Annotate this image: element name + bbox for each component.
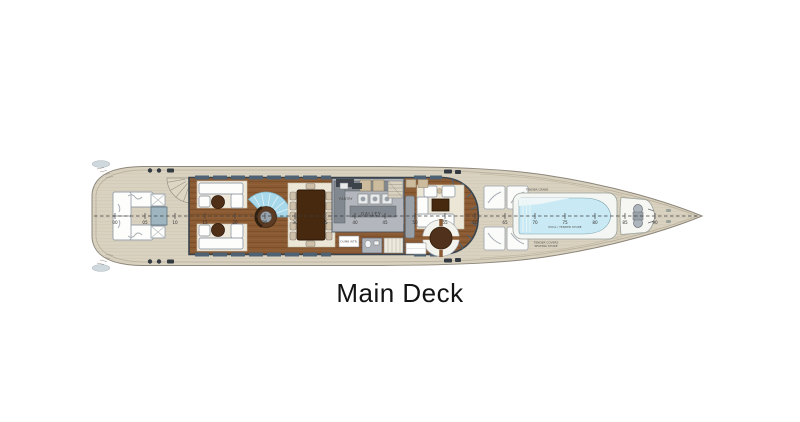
ruler-tick-label: 60 (472, 220, 478, 225)
ruler-tick-label: 35 (322, 220, 328, 225)
ruler-tick-label: 15 (202, 220, 208, 225)
ruler-tick-label: 20 (232, 220, 238, 225)
lounge-cabinet (406, 243, 426, 254)
ruler-tick-label: 25 (262, 220, 268, 225)
aft-side-table-bottom (151, 226, 165, 238)
salon-coffee-table-top (212, 196, 225, 209)
seating-store-label: SEATING STORE (534, 244, 557, 248)
ruler-tick-label: 80 (592, 220, 598, 225)
deck-plan-drawing: GALLEY PANTRY DUMB WTR. (0, 0, 800, 422)
dining-table (297, 190, 325, 240)
pool-store-label: POOL / TENDER STORE (548, 225, 581, 229)
ruler-tick-label: 10 (172, 220, 178, 225)
yacht-deck-plan-page: GALLEY PANTRY DUMB WTR. (0, 0, 800, 422)
aft-deck-table (151, 207, 167, 225)
ruler-tick-label: 90 (652, 220, 658, 225)
deck-title: Main Deck (0, 278, 800, 309)
salon-coffee-table-bottom (212, 224, 225, 237)
lounge-coffee-table (432, 199, 449, 211)
lounge-wall-sofa (406, 196, 415, 238)
ruler-tick-label: 65 (502, 220, 508, 225)
pantry-label: PANTRY (339, 197, 352, 201)
locker-room (384, 238, 403, 253)
ruler-tick-label: 30 (292, 220, 298, 225)
lounge-side-table (437, 189, 442, 194)
ruler-tick-label: 05 (142, 220, 148, 225)
galley-label: GALLEY (361, 212, 381, 218)
ruler-tick-label: 50 (412, 220, 418, 225)
ruler-tick-label: 45 (382, 220, 388, 225)
ruler-tick-label: 40 (352, 220, 358, 225)
ruler-tick-label: 75 (562, 220, 568, 225)
ruler-tick-label: 00 (112, 220, 118, 225)
tender-crane-label: TENDER CRANE (525, 188, 549, 192)
ruler-tick-label: 85 (622, 220, 628, 225)
aft-side-table-top (151, 194, 165, 206)
galley-stairs (388, 181, 403, 198)
ruler-tick-label: 70 (532, 220, 538, 225)
ruler-tick-label: 55 (442, 220, 448, 225)
galley: GALLEY PANTRY DUMB WTR. (332, 179, 404, 255)
day-head (362, 238, 382, 253)
dumbwaiter: DUMB WTR. (339, 236, 359, 247)
dumbwaiter-label: DUMB WTR. (340, 240, 357, 244)
